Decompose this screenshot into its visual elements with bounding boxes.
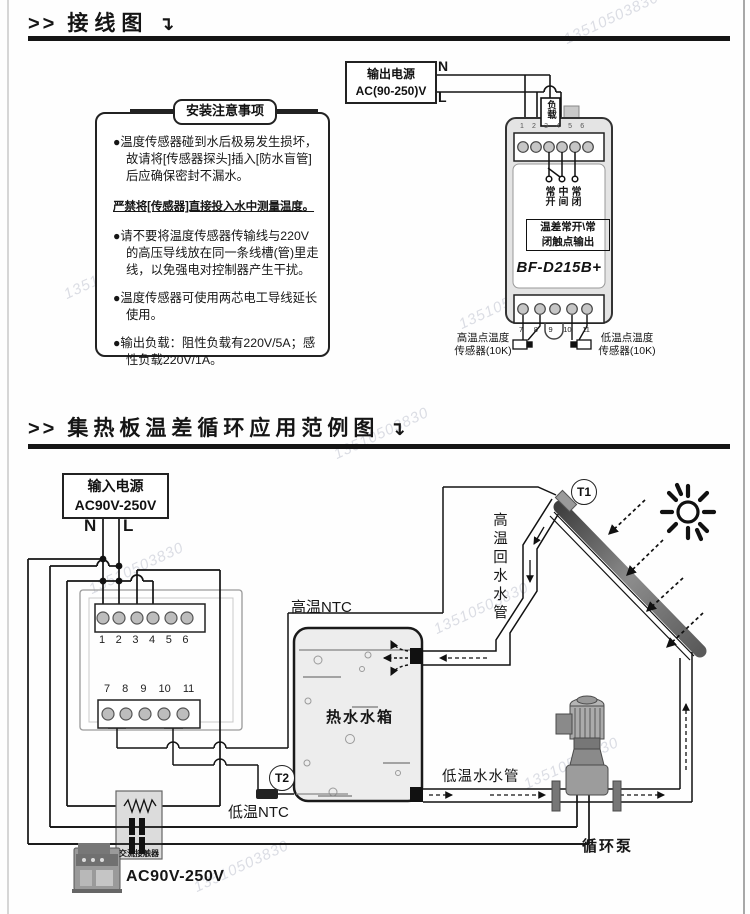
live-label: L bbox=[123, 516, 133, 536]
relay-output-caption-line1: 温差常开\常 bbox=[527, 220, 609, 235]
title-chevrons: >> bbox=[28, 418, 57, 441]
contact-nc-label: 常闭 bbox=[568, 186, 580, 206]
output-power-line1: 输出电源 bbox=[347, 66, 435, 83]
device-model: BF-D215B+ bbox=[513, 259, 605, 276]
output-power-line2: AC(90-250)V bbox=[347, 83, 435, 100]
high-temp-sensor-label: 高温点温度 传感器(10K) bbox=[450, 332, 516, 358]
contactor-photo bbox=[72, 843, 122, 893]
controller-terminals-bottom bbox=[98, 700, 200, 728]
title-text: 集热板温差循环应用范例图 bbox=[67, 412, 379, 442]
notes-content: ●温度传感器碰到水后极易发生损坏，故请将[传感器探头]插入[防水盲管]后应确保密… bbox=[113, 134, 319, 380]
title-divider bbox=[28, 36, 730, 41]
circulation-pump bbox=[552, 696, 621, 811]
output-power-box: 输出电源 AC(90-250)V bbox=[345, 61, 437, 104]
note-item-3: ●温度传感器可使用两芯电工导线延长使用。 bbox=[113, 290, 319, 324]
title-chevrons: >> bbox=[28, 13, 57, 36]
device-terminal-strip-top bbox=[514, 133, 604, 161]
input-power-line1: 输入电源 bbox=[64, 477, 167, 496]
terminal-numbers-top: 1 2 3 4 5 6 bbox=[520, 123, 584, 130]
live-label: L bbox=[438, 89, 447, 105]
low-ntc-label: 低温NTC bbox=[228, 801, 289, 822]
high-temp-sensor-label-line1: 高温点温度 bbox=[450, 332, 516, 345]
terminal-numbers-bottom: 7 8 9 10 11 bbox=[519, 325, 590, 334]
relay-output-caption-box: 温差常开\常 闭触点输出 bbox=[526, 219, 610, 251]
note-item-2: ●请不要将温度传感器传输线与220V的高压导线放在同一条线槽(管)里走线，以免强… bbox=[113, 228, 319, 279]
note-item-1: ●温度传感器碰到水后极易发生损坏，故请将[传感器探头]插入[防水盲管]后应确保密… bbox=[113, 134, 319, 185]
hot-return-pipe-label: 高温回水水管 bbox=[489, 512, 510, 623]
t2-sensor-badge: T2 bbox=[269, 765, 295, 791]
sun-icon bbox=[662, 485, 714, 539]
neutral-label: N bbox=[84, 516, 96, 536]
contactor-voltage-label: AC90V-250V bbox=[126, 868, 224, 886]
t1-sensor-badge: T1 bbox=[571, 479, 597, 505]
terminal-numbers-bottom: 7 8 9 10 11 bbox=[104, 683, 194, 695]
title-divider bbox=[28, 444, 730, 449]
down-arrow-glyph: ↴ bbox=[158, 13, 174, 36]
cold-pipe-label: 低温水水管 bbox=[442, 765, 520, 786]
tank-outlet-nozzle bbox=[410, 787, 423, 802]
contact-no-label: 常开 bbox=[542, 186, 554, 206]
pump-label: 循环泵 bbox=[582, 835, 633, 856]
capsule-stub-right bbox=[272, 109, 318, 112]
note-warning: 严禁将[传感器]直接投入水中测量温度。 bbox=[113, 198, 319, 215]
controller-terminals-top bbox=[95, 604, 205, 632]
low-temp-sensor-label-line1: 低温点温度 bbox=[594, 332, 660, 345]
title-text: 接线图 bbox=[67, 7, 148, 37]
load-label: 负载 bbox=[544, 100, 557, 119]
tank-inlet-nozzle bbox=[410, 648, 423, 664]
scanned-wiring-diagram-page: 13510503830 13510503830 13510503830 1351… bbox=[0, 0, 750, 914]
contactor-label: 交流接触器 bbox=[116, 848, 162, 859]
high-ntc-label: 高温NTC bbox=[291, 596, 352, 617]
note-item-4: ●输出负载：阻性负载有220V/5A；感性负载220V/1A。 bbox=[113, 335, 319, 369]
low-temp-sensor-label-line2: 传感器(10K) bbox=[594, 345, 660, 358]
capsule-stub-left bbox=[130, 109, 174, 112]
input-power-box: 输入电源 AC90V-250V bbox=[62, 473, 169, 519]
notes-title-capsule: 安装注意事项 bbox=[173, 99, 277, 125]
section1-title: >> 接线图 ↴ bbox=[28, 7, 174, 37]
neutral-label: N bbox=[438, 58, 448, 74]
tank-label: 热水水箱 bbox=[326, 706, 394, 727]
high-temp-sensor-label-line2: 传感器(10K) bbox=[450, 345, 516, 358]
contact-com-label: 中间 bbox=[555, 186, 567, 206]
terminal-numbers-top: 1 2 3 4 5 6 bbox=[99, 634, 189, 646]
low-temp-sensor-label: 低温点温度 传感器(10K) bbox=[594, 332, 660, 358]
section2-title: >> 集热板温差循环应用范例图 ↴ bbox=[28, 412, 405, 442]
down-arrow-glyph: ↴ bbox=[389, 418, 405, 441]
relay-output-caption-line2: 闭触点输出 bbox=[527, 235, 609, 250]
input-power-line2: AC90V-250V bbox=[64, 496, 167, 515]
